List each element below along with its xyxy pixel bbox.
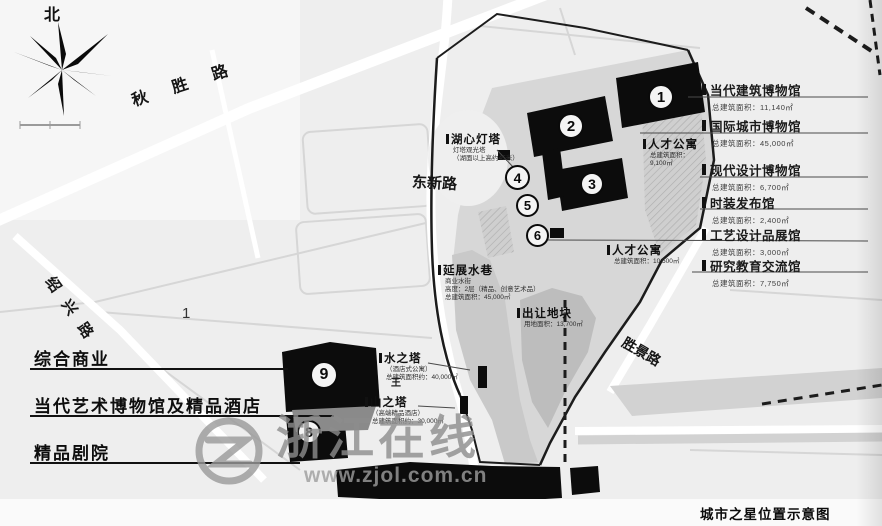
site-label-line: 总建筑面积：10,500㎡ bbox=[614, 258, 679, 266]
map-caption: 城市之星位置示意图 bbox=[700, 503, 831, 523]
legend-item-3: 现代设计博物馆 总建筑面积：6,700㎡ bbox=[702, 160, 874, 193]
site-label-line: （酒店式公寓） bbox=[386, 366, 458, 374]
planning-map: 北 秋胜路 东新路 绍兴路 胜景路 1 2 3 4 5 6 8 9 当代建筑博物… bbox=[0, 0, 882, 526]
site-label-mountain-tower-name: 山之塔 bbox=[370, 394, 408, 410]
page-edge-shade bbox=[856, 0, 882, 526]
site-label-line: 总建筑面积： bbox=[650, 152, 698, 160]
legend-1-area: 总建筑面积：11,140㎡ bbox=[712, 102, 874, 113]
site-label-line: 总建筑面积约：30,000㎡ bbox=[372, 418, 444, 426]
site-label-talent-2-name: 人才公寓 bbox=[612, 242, 662, 258]
site-label-talent-apartment-1: 人才公寓 总建筑面积： 9,100㎡ bbox=[643, 136, 698, 168]
site-label-line: （高端精品酒店） bbox=[372, 410, 444, 418]
marker-2[interactable]: 2 bbox=[558, 113, 584, 139]
marker-5[interactable]: 5 bbox=[516, 194, 539, 217]
tower-mountain-icon bbox=[460, 396, 468, 414]
legend-2-area: 总建筑面积：45,000㎡ bbox=[712, 138, 874, 149]
site-label-water-lane: 延展水巷 商业水街 高度：2层（精品、创意艺术品） 总建筑面积：45,000㎡ bbox=[438, 262, 540, 302]
site-label-transfer-plot-name: 出让地块 bbox=[522, 305, 572, 321]
bullet-icon bbox=[702, 197, 706, 208]
legend-6-name: 研究教育交流馆 bbox=[710, 256, 801, 275]
legend-5-name: 工艺设计品展馆 bbox=[710, 225, 801, 244]
road-shading bbox=[578, 437, 882, 440]
legend-2-name: 国际城市博物馆 bbox=[710, 116, 801, 135]
compass-north-label: 北 bbox=[44, 1, 60, 25]
site-label-line: 高度：2层（精品、创意艺术品） bbox=[445, 286, 540, 294]
site-label-line: （湖面以上高约45米） bbox=[453, 155, 519, 163]
marker-3[interactable]: 3 bbox=[580, 172, 604, 196]
site-label-water-lane-name: 延展水巷 bbox=[443, 262, 493, 278]
site-label-line: 总建筑面积：45,000㎡ bbox=[445, 294, 540, 302]
region-number: 1 bbox=[182, 305, 190, 322]
marker-8[interactable]: 8 bbox=[297, 420, 321, 444]
site-label-water-tower-name: 水之塔 bbox=[384, 350, 422, 366]
bullet-icon bbox=[446, 134, 449, 144]
bullet-icon bbox=[702, 120, 706, 131]
bullet-icon bbox=[702, 260, 706, 271]
site-label-line: 用地面积：13,700㎡ bbox=[524, 321, 583, 329]
site-label-transfer-plot: 出让地块 用地面积：13,700㎡ bbox=[517, 305, 583, 329]
legend-1-name: 当代建筑博物馆 bbox=[710, 80, 801, 99]
tower-water-icon bbox=[478, 366, 487, 388]
legend-commercial: 综合商业 bbox=[34, 345, 110, 370]
bullet-icon bbox=[702, 84, 706, 95]
site-label-line: 9,100㎡ bbox=[650, 160, 698, 168]
bullet-icon bbox=[438, 265, 441, 275]
site-label-mountain-tower: 山之塔 （高端精品酒店） 总建筑面积约：30,000㎡ bbox=[365, 394, 444, 426]
legend-6-area: 总建筑面积：7,750㎡ bbox=[712, 278, 874, 289]
legend-art-museum-hotel: 当代艺术博物馆及精品酒店 bbox=[34, 392, 262, 417]
legend-item-1: 当代建筑博物馆 总建筑面积：11,140㎡ bbox=[702, 80, 874, 113]
legend-4-name: 时装发布馆 bbox=[710, 193, 775, 212]
legend-item-2: 国际城市博物馆 总建筑面积：45,000㎡ bbox=[702, 116, 874, 149]
site-label-talent-1-name: 人才公寓 bbox=[648, 136, 698, 152]
bullet-icon bbox=[702, 164, 706, 175]
bullet-icon bbox=[643, 139, 646, 149]
legend-item-6: 研究教育交流馆 总建筑面积：7,750㎡ bbox=[702, 256, 874, 289]
legend-item-4: 时装发布馆 总建筑面积：2,400㎡ bbox=[702, 193, 874, 226]
site-label-line: 商业水街 bbox=[445, 278, 540, 286]
site-label-line: 灯塔观光塔 bbox=[453, 147, 519, 155]
legend-3-name: 现代设计博物馆 bbox=[710, 160, 801, 179]
marker-9[interactable]: 9 bbox=[310, 361, 338, 389]
bullet-icon bbox=[702, 229, 706, 240]
bullet-icon bbox=[365, 397, 368, 407]
bullet-icon bbox=[517, 308, 520, 318]
bullet-icon bbox=[379, 353, 382, 363]
legend-3-area: 总建筑面积：6,700㎡ bbox=[712, 182, 874, 193]
site-label-lighthouse: 湖心灯塔 灯塔观光塔 （湖面以上高约45米） bbox=[446, 131, 519, 163]
legend-item-5: 工艺设计品展馆 总建筑面积：3,000㎡ bbox=[702, 225, 874, 258]
building-small-c bbox=[550, 228, 564, 238]
marker-1[interactable]: 1 bbox=[648, 84, 674, 110]
bullet-icon bbox=[607, 245, 610, 255]
site-label-talent-apartment-2: 人才公寓 总建筑面积：10,500㎡ bbox=[607, 242, 679, 266]
elevated-road-band bbox=[336, 462, 562, 503]
small-map-mark: 王 bbox=[391, 374, 401, 389]
site-label-lighthouse-name: 湖心灯塔 bbox=[451, 131, 501, 147]
marker-4[interactable]: 4 bbox=[505, 165, 530, 190]
legend-theater: 精品剧院 bbox=[34, 439, 110, 464]
elevated-road-band-2 bbox=[570, 466, 600, 495]
marker-6[interactable]: 6 bbox=[526, 224, 549, 247]
road-label-dongxin: 东新路 bbox=[411, 165, 458, 202]
